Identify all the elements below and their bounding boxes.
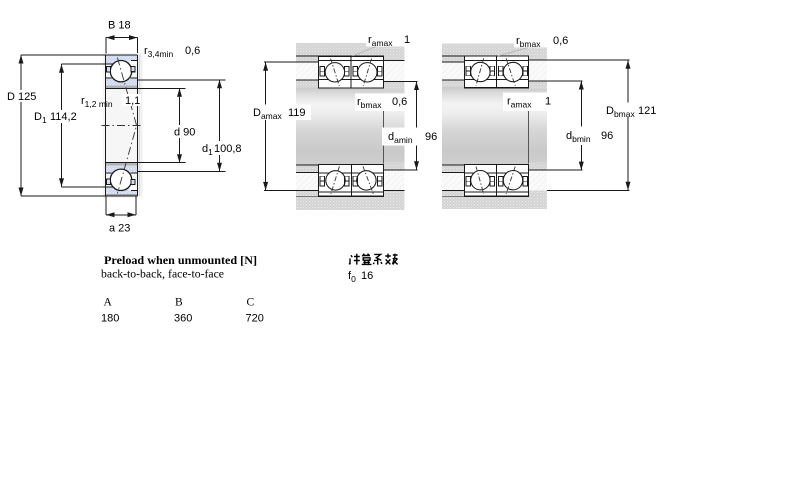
svg-text:720: 720 xyxy=(246,313,264,325)
svg-text:D1114,2: D1114,2 xyxy=(34,111,77,125)
svg-text:A: A xyxy=(104,297,113,309)
svg-text:Preload when unmounted [N]: Preload when unmounted [N] xyxy=(104,255,257,267)
svg-text:f016: f016 xyxy=(348,270,373,284)
svg-text:B: B xyxy=(175,297,183,309)
svg-text:1,1: 1,1 xyxy=(125,95,140,107)
svg-text:a 23: a 23 xyxy=(109,223,130,235)
svg-text:B 18: B 18 xyxy=(108,20,131,32)
svg-text:back-to-back, face-to-face: back-to-back, face-to-face xyxy=(101,269,224,281)
svg-text:r3,4min0,6: r3,4min0,6 xyxy=(144,45,200,59)
svg-text:d 90: d 90 xyxy=(174,127,195,139)
svg-text:180: 180 xyxy=(101,313,119,325)
svg-text:D 125: D 125 xyxy=(7,91,36,103)
svg-text:d1100,8: d1100,8 xyxy=(202,143,242,157)
svg-text:360: 360 xyxy=(174,313,192,325)
svg-text:C: C xyxy=(247,297,255,309)
